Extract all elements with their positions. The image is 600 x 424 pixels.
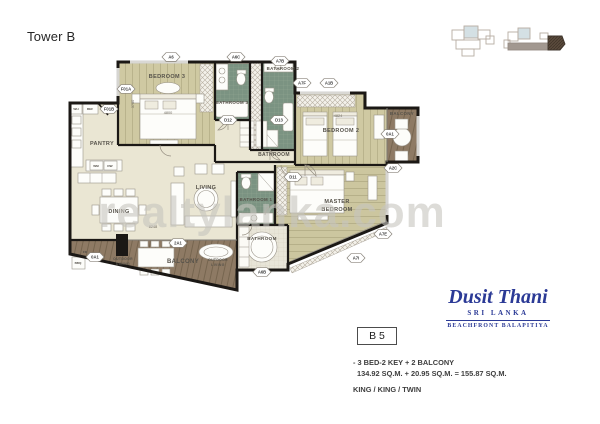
balcony-chair <box>395 119 408 129</box>
brand-subtitle: SRI LANKA <box>438 309 558 317</box>
svg-text:0A1: 0A1 <box>91 255 99 260</box>
plan-marker-a6b: A6B <box>253 268 271 277</box>
svg-text:F01A: F01A <box>121 87 131 92</box>
plan-marker-d12: D12 <box>219 116 237 125</box>
keyplan-unit-highlight <box>548 36 565 50</box>
plan-marker-d11: D11 <box>284 173 302 182</box>
plan-marker-2a1: 2A1 <box>169 239 187 248</box>
svg-text:D12: D12 <box>224 118 232 123</box>
room-label: BALCONY <box>167 259 199 265</box>
svg-text:2A1: 2A1 <box>174 241 182 246</box>
room-label: BATHROOM 2 <box>267 66 300 71</box>
room-label: LIVING <box>211 263 224 267</box>
plan-marker-a6: A6 <box>162 53 180 62</box>
dim-label: 4800 <box>164 111 172 115</box>
plan-marker-d13: D13 <box>270 116 288 125</box>
room-label: BATHROOM 3 <box>216 100 249 105</box>
unit-bed-line: KING / KING / TWIN <box>353 385 507 396</box>
structural-column <box>116 234 128 256</box>
plan-marker-a6c: A6C <box>227 53 245 62</box>
side-table <box>174 167 184 176</box>
room-label: OUTDOOR <box>208 258 228 262</box>
svg-text:A6: A6 <box>168 55 174 60</box>
brand-tagline: BEACHFRONT BALAPITIYA <box>438 323 558 329</box>
plan-marker-a2c: A2C <box>384 164 402 173</box>
brand-divider <box>446 320 550 321</box>
plan-marker-a7f: A7F <box>293 79 311 88</box>
bedroom2-wardrobe <box>297 95 355 107</box>
room-label: BEDROOM 3 <box>149 74 185 80</box>
room-label: PANTRY <box>90 141 114 147</box>
brand-name: Dusit Thani <box>438 286 558 308</box>
unit-code: B 5 <box>369 330 385 342</box>
unit-area-line: 134.92 SQ.M. + 20.95 SQ.M. = 155.87 SQ.M… <box>357 369 507 380</box>
balcony-chair <box>395 151 408 161</box>
floor-plan: 4800482482483750 WHREFWMDWBBQFD BEDROOM … <box>0 0 600 424</box>
dim-label: 4824 <box>334 114 342 118</box>
svg-text:A7B: A7B <box>276 59 284 64</box>
keyplan-unit-locator <box>504 28 565 50</box>
svg-text:A2C: A2C <box>389 166 397 171</box>
plan-marker-f01b: F01B <box>100 105 118 114</box>
bedroom3-wardrobe <box>200 64 213 112</box>
cabinet <box>78 173 116 183</box>
keyplan-building-outline <box>452 26 494 56</box>
sink <box>72 116 81 124</box>
svg-text:A6B: A6B <box>258 270 266 275</box>
brand-logo: Dusit Thani SRI LANKA BEACHFRONT BALAPIT… <box>438 286 558 329</box>
keyplan-highlight-room <box>464 26 478 38</box>
toilet <box>237 73 246 85</box>
svg-text:A7I: A7I <box>353 256 360 261</box>
room-label: BEDROOM 2 <box>323 128 359 134</box>
unit-type-line: - 3 BED-2 KEY + 2 BALCONY <box>353 358 507 369</box>
svg-text:F01B: F01B <box>104 107 114 112</box>
plan-marker-a7b: A7B <box>271 57 289 66</box>
floor-plan-sheet: Tower B <box>0 0 600 424</box>
svg-text:D11: D11 <box>289 175 297 180</box>
fixture-label: WH <box>73 107 79 111</box>
plan-marker-0a1: 0A1 <box>86 253 104 262</box>
plan-marker-0a1: 0A1 <box>381 130 399 139</box>
svg-text:A7E: A7E <box>379 232 387 237</box>
plan-marker-a7e: A7E <box>374 230 392 239</box>
room-label: BALCONY <box>390 111 414 116</box>
unit-code-box: B 5 <box>357 327 397 345</box>
svg-text:0A1: 0A1 <box>386 132 394 137</box>
bed-headboard <box>140 94 196 99</box>
plan-marker-f01a: F01A <box>117 85 135 94</box>
armchair <box>195 164 207 174</box>
svg-text:A6C: A6C <box>232 55 240 60</box>
balcony2-furniture <box>393 119 411 161</box>
svg-text:A7F: A7F <box>298 81 306 86</box>
plan-marker-a1b: A1B <box>320 79 338 88</box>
room-label: BATHROOM <box>258 152 290 158</box>
fixture-label: WM <box>93 164 99 168</box>
plan-marker-a7i: A7I <box>347 254 365 263</box>
svg-text:A1B: A1B <box>325 81 333 86</box>
fixture-label: BBQ <box>75 261 82 265</box>
room-label: DINING <box>116 262 130 266</box>
watermark: realtylanka.com <box>98 188 446 237</box>
fixture-label: DW <box>107 164 112 168</box>
armchair <box>212 164 224 174</box>
dim-label: 3750 <box>131 100 135 108</box>
room-label: OUTDOOR <box>113 257 133 261</box>
unit-info: - 3 BED-2 KEY + 2 BALCONY 134.92 SQ.M. +… <box>353 358 507 396</box>
toilet <box>265 91 274 103</box>
fixture-label: REF <box>87 107 93 111</box>
svg-text:D13: D13 <box>275 118 283 123</box>
keyplan-wing <box>508 43 552 50</box>
